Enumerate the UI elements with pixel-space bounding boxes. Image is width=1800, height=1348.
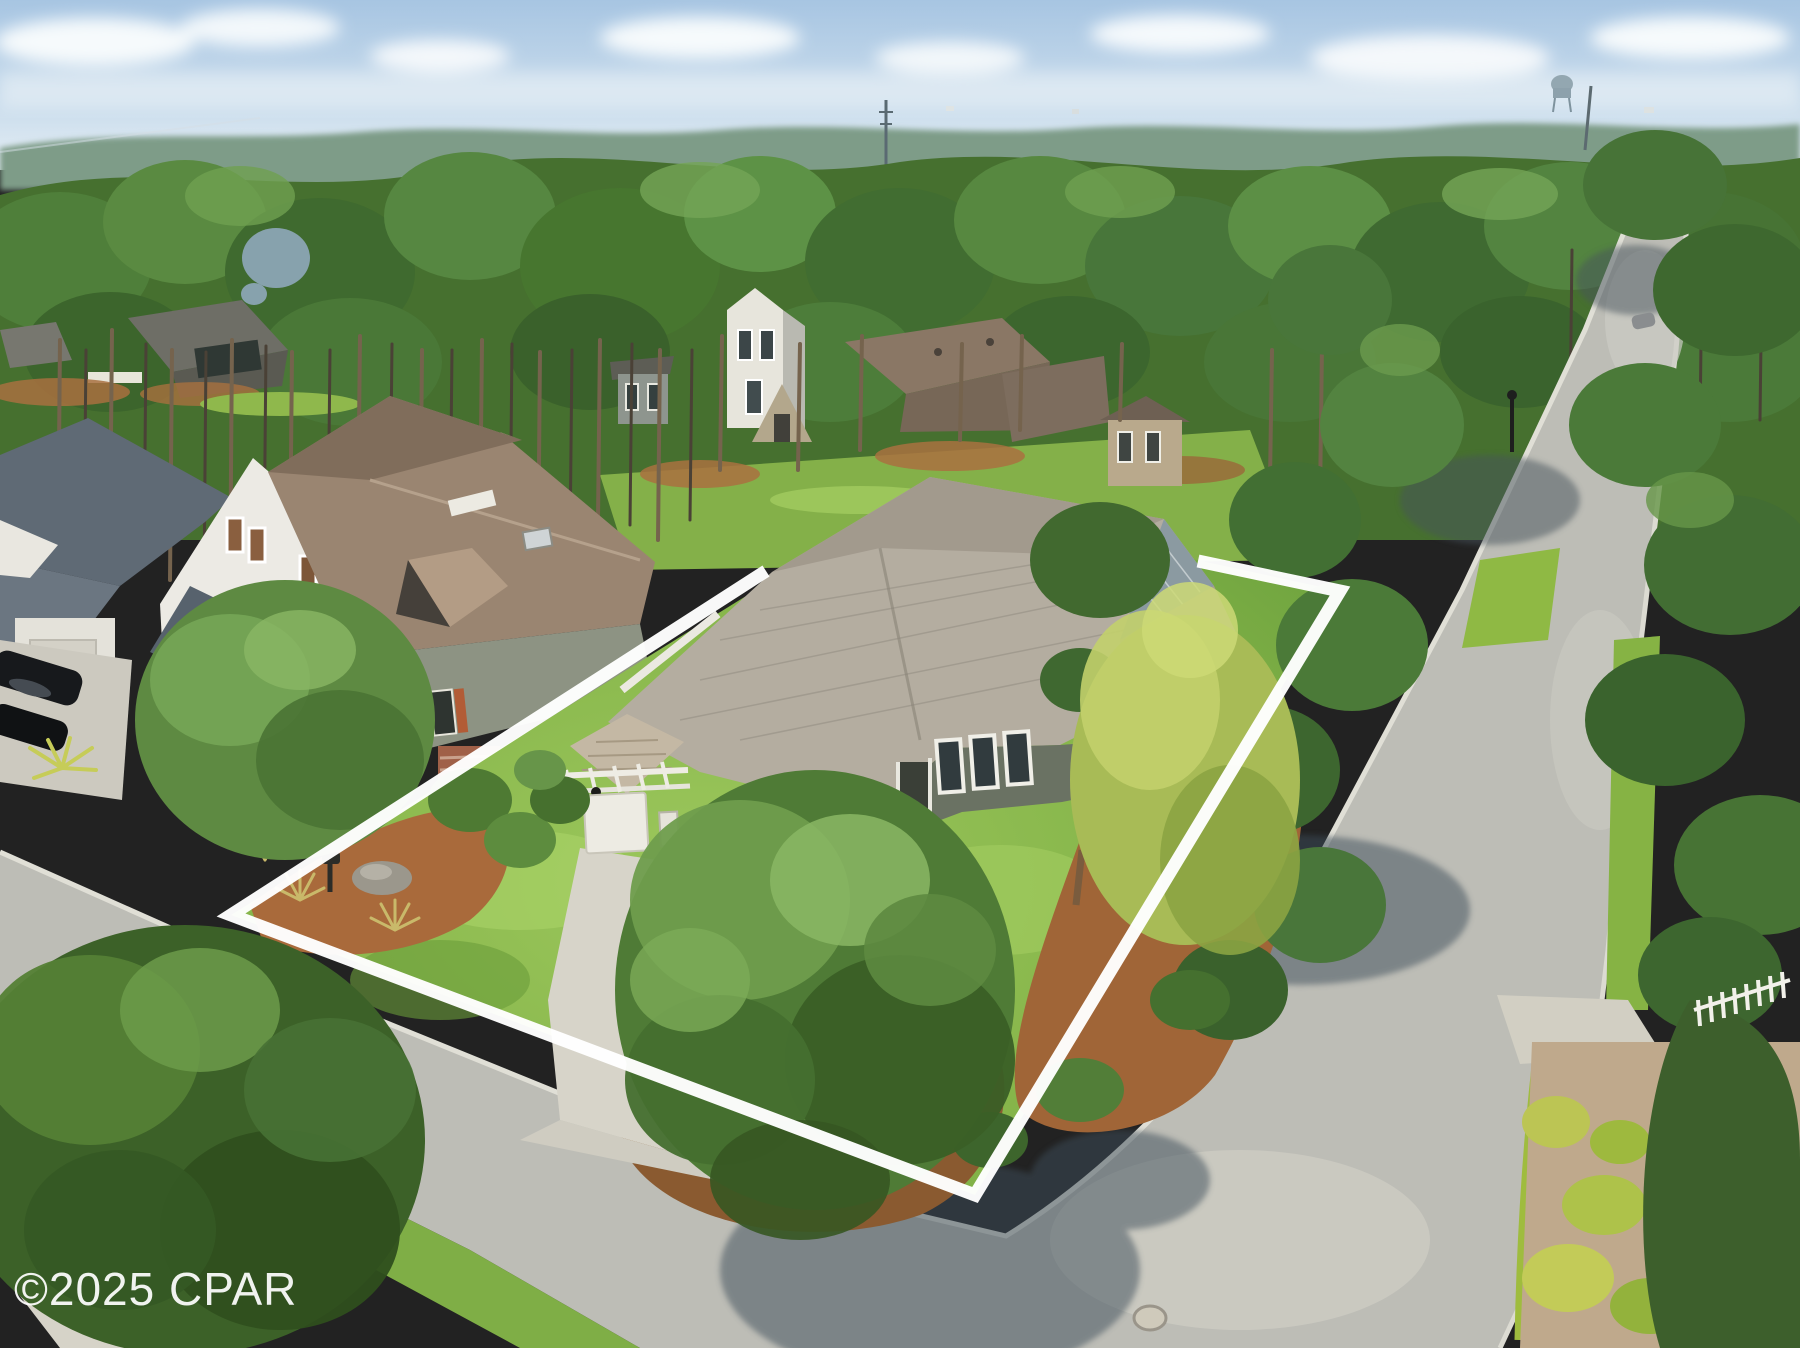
shrub	[1590, 1120, 1650, 1164]
roof-vent	[986, 338, 994, 346]
distant-building	[1072, 109, 1079, 114]
roof-vent	[934, 348, 942, 356]
window	[227, 518, 243, 552]
shrub	[1562, 1175, 1646, 1235]
haze-band	[0, 72, 1800, 108]
door	[774, 414, 790, 442]
garage-door	[584, 792, 649, 853]
pine-straw-patch	[875, 441, 1025, 471]
cloud	[0, 18, 195, 66]
canopy-highlight	[1360, 324, 1440, 376]
cloud	[1090, 15, 1270, 53]
manhole-cover	[1134, 1306, 1166, 1330]
cloud	[370, 40, 510, 72]
window	[738, 330, 752, 360]
tree-canopy	[1583, 130, 1727, 240]
watermark: ©2025 CPAR	[14, 1263, 297, 1315]
aerial-photo: ©2025 CPAR	[0, 0, 1800, 1348]
tree-canopy	[1585, 654, 1745, 786]
front-windows	[936, 731, 1032, 793]
skylight	[523, 528, 553, 550]
shrub	[1522, 1244, 1614, 1312]
distant-building	[1644, 107, 1654, 113]
canopy-highlight	[1646, 472, 1734, 528]
window	[746, 380, 762, 414]
tree-canopy	[1674, 795, 1800, 935]
tree-canopy	[1569, 363, 1721, 487]
cloud	[180, 9, 340, 47]
cloud	[1590, 17, 1790, 59]
window	[760, 330, 774, 360]
tree-canopy	[1320, 363, 1464, 487]
sunlit-grass	[200, 392, 360, 416]
pond	[242, 228, 310, 288]
gray-house-behind	[610, 356, 674, 424]
pine-highlight	[640, 162, 760, 218]
shrub	[1522, 1096, 1590, 1148]
boulder-highlight	[360, 864, 392, 880]
pond	[241, 283, 267, 305]
distant-building	[946, 106, 954, 111]
window	[249, 528, 265, 562]
tree-canopy	[1229, 462, 1361, 578]
pine-highlight	[185, 166, 295, 226]
window	[1146, 432, 1160, 462]
pine-highlight	[1065, 166, 1175, 218]
window	[1118, 432, 1132, 462]
pine-highlight	[1442, 168, 1558, 220]
cloud	[875, 42, 1025, 74]
cloud	[600, 17, 800, 59]
tree-canopy	[1276, 579, 1428, 711]
